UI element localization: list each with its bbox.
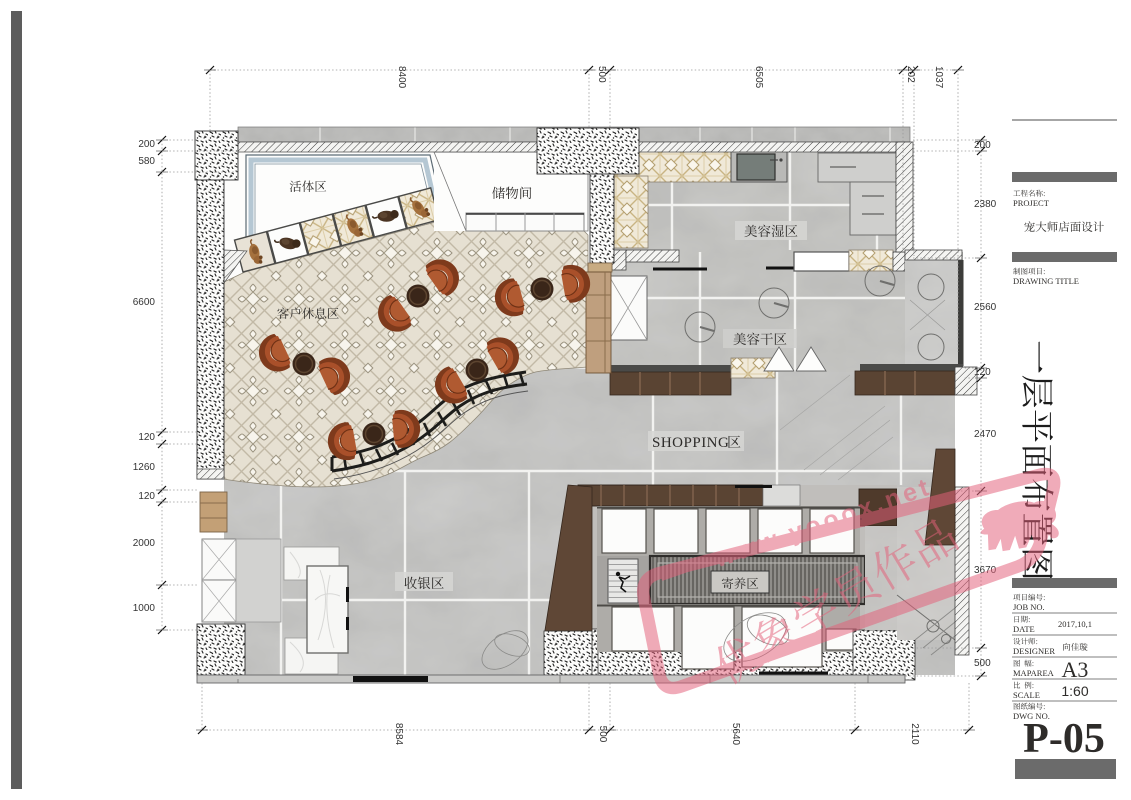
svg-text:DRAWING TITLE: DRAWING TITLE xyxy=(1013,276,1079,286)
svg-text:2017,10,1: 2017,10,1 xyxy=(1058,619,1092,629)
svg-text:500: 500 xyxy=(974,658,991,669)
svg-text:1000: 1000 xyxy=(133,603,156,614)
svg-text:5640: 5640 xyxy=(730,723,741,746)
svg-text:1260: 1260 xyxy=(133,462,156,473)
svg-text:500: 500 xyxy=(596,66,607,83)
svg-text:SHOPPING: SHOPPING xyxy=(652,435,729,451)
svg-text:JOB NO.: JOB NO. xyxy=(1013,602,1045,612)
svg-text:120: 120 xyxy=(138,432,155,443)
svg-text:8400: 8400 xyxy=(396,66,407,89)
svg-text:202: 202 xyxy=(905,66,916,83)
svg-text:200: 200 xyxy=(974,140,991,151)
svg-text:2110: 2110 xyxy=(909,723,920,745)
svg-text:2560: 2560 xyxy=(974,302,997,313)
svg-text:PROJECT: PROJECT xyxy=(1013,198,1050,208)
svg-text:DATE: DATE xyxy=(1013,624,1035,634)
svg-text:580: 580 xyxy=(138,156,155,167)
svg-text:500: 500 xyxy=(597,726,608,743)
svg-text:6600: 6600 xyxy=(133,297,156,308)
svg-text:1:60: 1:60 xyxy=(1061,683,1088,699)
svg-text:SCALE: SCALE xyxy=(1013,690,1040,700)
svg-text:200: 200 xyxy=(138,139,155,150)
svg-text:8584: 8584 xyxy=(393,723,404,746)
svg-text:2000: 2000 xyxy=(133,538,156,549)
svg-text:DESIGNER: DESIGNER xyxy=(1013,646,1055,656)
svg-text:120: 120 xyxy=(138,491,155,502)
svg-text:2470: 2470 xyxy=(974,429,997,440)
svg-text:P-05: P-05 xyxy=(1023,716,1105,762)
svg-text:6505: 6505 xyxy=(753,66,764,89)
svg-text:2380: 2380 xyxy=(974,199,997,210)
svg-text:A3: A3 xyxy=(1062,657,1089,682)
svg-text:1037: 1037 xyxy=(933,66,944,89)
svg-text:MAPAREA: MAPAREA xyxy=(1013,668,1055,678)
svg-text:120: 120 xyxy=(974,367,991,378)
